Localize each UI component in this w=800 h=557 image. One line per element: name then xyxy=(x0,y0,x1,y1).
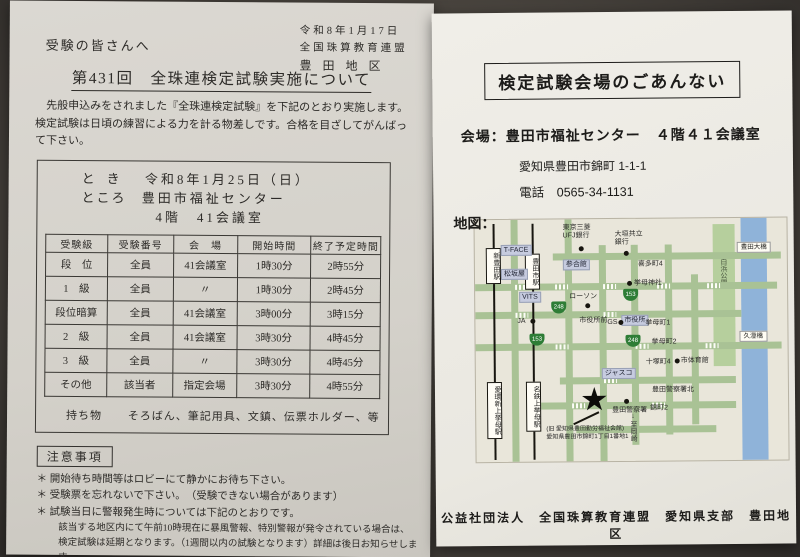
poi-ogaki-kyoritsu-bank: 大垣共立銀行 xyxy=(615,231,645,247)
bridge-toyota-ohashi: 豊田大橋 xyxy=(737,242,771,253)
table-row: 2 級 全員 41会議室 3時30分 4時45分 xyxy=(45,324,380,350)
poi-dot xyxy=(627,281,632,286)
cell-start: 3時00分 xyxy=(237,301,311,326)
cell-number: 全員 xyxy=(107,276,173,300)
cell-start: 3時30分 xyxy=(237,349,311,374)
bridge-kyusei-bashi: 久澄橋 xyxy=(739,331,767,342)
crosswalk-mark xyxy=(556,344,569,349)
cell-number: 該当者 xyxy=(107,372,173,396)
intro-paragraph: 先般申込みをされました『全珠連検定試験』を下記のとおり実施します。検定試験は日頃… xyxy=(35,98,411,153)
venue-address: 愛知県豊田市錦町 1-1-1 xyxy=(519,155,793,174)
building-vits: VITS xyxy=(519,292,541,303)
cell-venue: 指定会場 xyxy=(172,373,236,397)
cell-end: 3時15分 xyxy=(310,302,380,326)
poi-koromo-shrine: 挙母神社 xyxy=(634,280,662,288)
cell-number: 全員 xyxy=(107,324,173,348)
table-row: 段位暗算 全員 41会議室 3時00分 3時15分 xyxy=(45,300,380,326)
table-row: 1 級 全員 〃 1時30分 2時45分 xyxy=(45,276,380,302)
cell-venue: 〃 xyxy=(173,349,237,373)
direction-label: 至岡崎 xyxy=(629,420,637,441)
map-label: 地図： xyxy=(453,213,495,233)
table-row: 段 位 全員 41会議室 1時30分 2時55分 xyxy=(46,252,381,278)
direction-okazaki: ↓ 至岡崎 xyxy=(629,413,637,442)
cell-end: 2時55分 xyxy=(311,254,381,278)
guide-title-wrap: 検定試験会場のごあんない xyxy=(432,60,792,100)
guide-title: 検定試験会場のごあんない xyxy=(484,61,740,100)
belongings-label: 持ち物 xyxy=(66,409,102,421)
building-city-hall: 市役所 xyxy=(621,315,648,326)
guide-footer: 公益社団法人 全国珠算教育連盟 愛知県支部 豊田地区 xyxy=(436,506,796,543)
schedule-box: とき 令和8年1月25日（日） ところ 豊田市福祉センター 4階 41会議室 受… xyxy=(35,159,391,434)
poi-dot xyxy=(675,358,680,363)
intersection-koromocho-2: 挙母町2 xyxy=(652,338,677,346)
station-meitetsu-uwagoromo: 名鉄上挙母駅 xyxy=(526,382,541,432)
col-header-end: 終了予定時間 xyxy=(311,236,381,254)
belongings-row: 持ち物 そろばん、筆記用具、文鎮、伝票ホルダー、等 xyxy=(66,406,388,424)
poi-dot xyxy=(624,399,629,404)
col-header-number: 受験番号 xyxy=(108,234,174,252)
poi-gas-station: GS xyxy=(607,319,617,327)
intersection-shiyakusho-mae: 市役所前 xyxy=(579,317,607,325)
exam-notice-page: 令和8年1月17日 全国珠算教育連盟 豊田地区 受験の皆さんへ 第431回 全珠… xyxy=(6,1,434,557)
intersection-kitamachi-4: 喜多町4 xyxy=(638,261,663,269)
venue-phone: 電話 0565-34-1131 xyxy=(519,179,793,200)
cell-end: 4時55分 xyxy=(310,374,380,398)
col-header-start: 開始時間 xyxy=(237,235,311,254)
cell-grade: 3 級 xyxy=(45,348,107,372)
organization-name: 全国珠算教育連盟 xyxy=(300,40,408,58)
crosswalk-mark xyxy=(555,284,568,289)
note-line: ＊ 受験票を忘れないで下さい。 （受験できない場合があります） xyxy=(36,488,422,507)
cell-number: 全員 xyxy=(108,252,174,276)
venue-line: 会場：豊田市福祉センター ４階４１会議室 xyxy=(461,123,793,146)
poi-dot xyxy=(530,319,535,324)
when-label: とき xyxy=(82,171,132,186)
crosswalk-mark xyxy=(706,343,719,348)
cell-start: 1時30分 xyxy=(237,253,311,278)
cell-start: 1時30分 xyxy=(237,277,311,302)
building-t-face: T-FACE xyxy=(501,245,532,256)
station-shin-toyota: 新豊田駅 xyxy=(486,248,501,284)
cell-grade: その他 xyxy=(45,372,107,396)
col-header-grade: 受験級 xyxy=(46,234,108,252)
poi-tokyo-mitsubishi-ufj-bank: 東京三菱UFJ銀行 xyxy=(563,224,603,240)
down-arrow-icon: ↓ xyxy=(629,413,637,421)
where-value: 豊田市福祉センター xyxy=(142,190,286,206)
poi-dot xyxy=(618,320,623,325)
intersection-nishikimachi-2: 錦町2 xyxy=(650,405,668,413)
photo-background: 令和8年1月17日 全国珠算教育連盟 豊田地区 受験の皆さんへ 第431回 全珠… xyxy=(0,0,800,557)
crosswalk-mark xyxy=(707,283,720,288)
cell-venue: 41会議室 xyxy=(173,253,237,277)
cell-number: 全員 xyxy=(107,300,173,324)
building-sangokan: 参合館 xyxy=(563,259,590,270)
intersection-koromocho-1: 挙母町1 xyxy=(645,320,670,328)
intersection-police-north: 豊田警察署北 xyxy=(652,386,694,394)
station-aikan-shin-uwagoromo: 愛環新上挙母駅 xyxy=(487,382,502,439)
venue-note-line2: 愛知県豊田市錦町1丁目1番地1 xyxy=(546,433,628,442)
cell-grade: 1 級 xyxy=(45,276,107,300)
when-value: 令和8年1月25日（日） xyxy=(145,171,311,187)
venue-map: 白浜公園 xyxy=(473,216,789,463)
poi-dot xyxy=(585,303,590,308)
poi-lawson: ローソン xyxy=(569,293,597,301)
sender-block: 令和8年1月17日 全国珠算教育連盟 豊田地区 xyxy=(299,23,407,76)
road-vertical xyxy=(510,220,519,462)
crosswalk-mark xyxy=(603,284,616,289)
notes-list: ＊ 開始待ち時間等はロビーにて静かにお待ち下さい。 ＊ 受験票を忘れないで下さい… xyxy=(36,471,423,557)
venue-guide-page: 検定試験会場のごあんない 会場：豊田市福祉センター ４階４１会議室 愛知県豊田市… xyxy=(432,10,797,546)
intersection-tozukacho-4: 十塚町4 xyxy=(646,359,671,367)
when-row: とき 令和8年1月25日（日） xyxy=(82,169,390,190)
cell-number: 全員 xyxy=(107,348,173,372)
venue-star-icon: ★ xyxy=(580,383,609,415)
cell-end: 2時45分 xyxy=(311,278,381,302)
cell-venue: 41会議室 xyxy=(173,325,237,349)
poi-dot xyxy=(624,251,629,256)
table-row: その他 該当者 指定会場 3時30分 4時55分 xyxy=(45,372,380,398)
cell-start: 3時30分 xyxy=(237,325,311,350)
poi-city-gym: 市体育館 xyxy=(681,357,709,365)
where-row: ところ 豊田市福祉センター xyxy=(82,188,390,209)
notes-title: 注意事項 xyxy=(37,445,113,467)
table-header-row: 受験級 受験番号 会 場 開始時間 終了予定時間 xyxy=(46,234,381,254)
belongings-list: そろばん、筆記用具、文鎮、伝票ホルダー、等 xyxy=(128,410,380,424)
where-label: ところ xyxy=(82,190,127,205)
cell-grade: 段 位 xyxy=(46,252,108,276)
cell-start: 3時30分 xyxy=(236,373,310,398)
exam-schedule-table: 受験級 受験番号 会 場 開始時間 終了予定時間 段 位 全員 41会議室 1時… xyxy=(44,233,381,398)
district-name: 豊田地区 xyxy=(299,58,407,76)
cell-end: 4時45分 xyxy=(310,326,380,350)
cell-venue: 〃 xyxy=(173,277,237,301)
poi-ja: JA xyxy=(517,318,525,326)
cell-end: 4時45分 xyxy=(310,350,380,374)
poi-dot xyxy=(579,246,584,251)
col-header-venue: 会 場 xyxy=(173,235,237,253)
note-subline: 検定試験は延期となります。（1週間以内の試験となります）詳細は後日お知らせします… xyxy=(36,536,422,557)
cell-venue: 41会議室 xyxy=(173,301,237,325)
venue-note: (旧 愛知県豊田勤労福祉会館) 愛知県豊田市錦町1丁目1番地1 xyxy=(546,425,628,442)
where-value-room: 4階 41会議室 xyxy=(155,207,389,228)
building-matsuzakaya: 松坂屋 xyxy=(501,269,528,280)
building-jusco: ジャスコ xyxy=(602,368,636,379)
cell-grade: 2 級 xyxy=(45,324,107,348)
table-row: 3 級 全員 〃 3時30分 4時45分 xyxy=(45,348,380,374)
issue-date: 令和8年1月17日 xyxy=(300,23,408,41)
cell-grade: 段位暗算 xyxy=(45,300,107,324)
